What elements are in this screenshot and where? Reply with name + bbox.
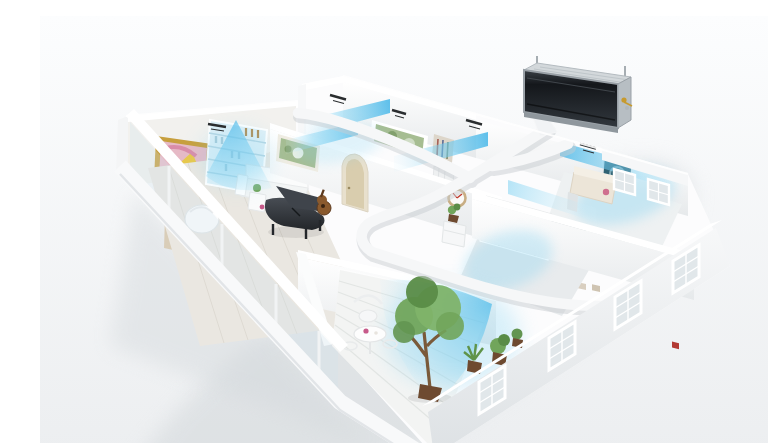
cream-door: [346, 159, 364, 209]
window-small: [648, 179, 669, 205]
window-small: [614, 169, 635, 195]
pink-pillow: [603, 189, 609, 195]
refrigerant-fitting: [621, 97, 626, 102]
arched-doorway: [342, 154, 368, 212]
airflow-wash-living: [198, 128, 274, 188]
ducted-ac-cutaway-illustration: [40, 16, 768, 443]
scene-svg: [40, 16, 768, 443]
pink-carafe: [363, 328, 368, 333]
drain-fitting: [625, 106, 629, 110]
door-knob: [348, 187, 351, 190]
cup: [374, 331, 378, 335]
pink-accent: [260, 205, 265, 210]
sound-hole: [321, 204, 325, 208]
